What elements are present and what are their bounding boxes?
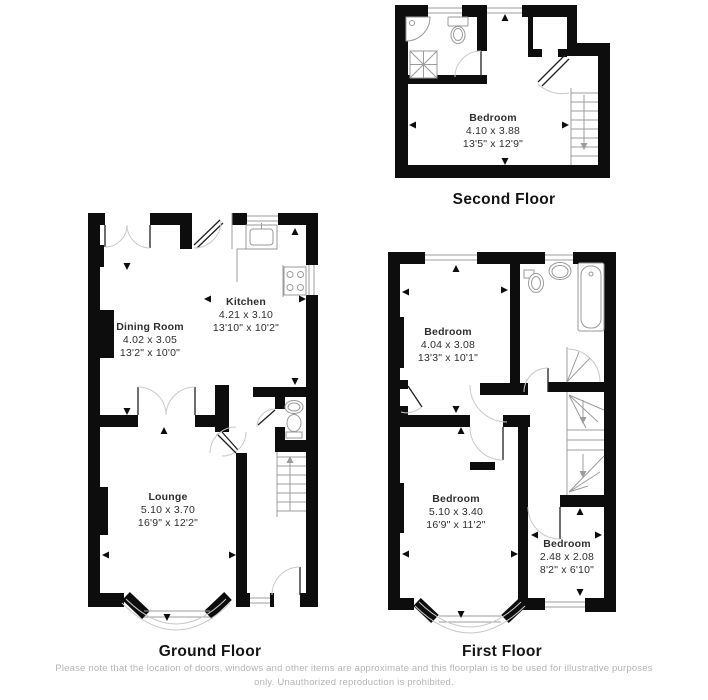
lounge-door-swing	[210, 427, 236, 453]
staircase-symbol	[571, 88, 598, 165]
toilet-symbol	[448, 17, 468, 44]
room-name: Kitchen	[226, 296, 266, 308]
room-name: Bedroom	[432, 493, 480, 505]
toilet-symbol	[524, 270, 544, 293]
room-dim-metric: 5.10 x 3.40	[429, 506, 483, 518]
room-dim-imperial: 13'5" x 12'9"	[463, 138, 523, 150]
winder-stairs-symbol	[567, 347, 600, 382]
skylight-symbol	[410, 51, 437, 78]
bedroom2-door-swing	[470, 427, 503, 460]
entrance-door-swing	[194, 220, 223, 248]
room-dim-metric: 4.02 x 3.05	[123, 334, 177, 346]
shower-symbol	[406, 17, 430, 41]
room-name: Dining Room	[116, 321, 184, 333]
bedroom3-label: Bedroom 2.48 x 2.08 8'2" x 6'10"	[540, 538, 594, 576]
second-floor-walls	[395, 5, 610, 178]
first-floor-plan: Bedroom 4.04 x 3.08 13'3" x 10'1" Bedroo…	[386, 250, 618, 642]
room-dim-metric: 5.10 x 3.70	[141, 504, 195, 516]
disclaimer-text: Please note that the location of doors, …	[54, 662, 654, 691]
room-dim-imperial: 16'9" x 12'2"	[138, 517, 198, 529]
ground-floor-plan: Dining Room 4.02 x 3.05 13'2" x 10'0" Ki…	[86, 211, 334, 635]
french-doors-swing	[105, 225, 150, 248]
floorplan-page: Bedroom 4.10 x 3.88 13'5" x 12'9" Second…	[0, 0, 708, 700]
room-dim-imperial: 13'10" x 10'2"	[213, 322, 279, 334]
ground-floor-caption: Ground Floor	[159, 643, 262, 661]
staircase-symbol	[277, 452, 306, 517]
room-dim-metric: 4.10 x 3.88	[466, 125, 520, 137]
room-name: Bedroom	[543, 538, 591, 550]
lounge-label: Lounge 5.10 x 3.70 16'9" x 12'2"	[138, 491, 198, 529]
bathroom-door-swing	[455, 51, 481, 77]
kitchen-sink-symbol	[246, 223, 277, 249]
room-name: Bedroom	[469, 112, 517, 124]
staircase-symbol	[567, 392, 604, 495]
kitchen-label: Kitchen 4.21 x 3.10 13'10" x 10'2"	[213, 296, 279, 334]
dining-room-label: Dining Room 4.02 x 3.05 13'2" x 10'0"	[116, 321, 184, 359]
wc-sink-symbol	[285, 401, 303, 414]
room-name: Bedroom	[424, 326, 472, 338]
bathtub-symbol	[578, 263, 604, 331]
double-doors-swing	[138, 387, 195, 415]
room-dim-metric: 4.21 x 3.10	[219, 309, 273, 321]
bedroom2-label: Bedroom 5.10 x 3.40 16'9" x 11'2"	[426, 493, 485, 531]
room-dim-metric: 4.04 x 3.08	[421, 339, 475, 351]
stove-symbol	[284, 267, 306, 295]
kitchen-counter	[237, 249, 283, 297]
first-floor-caption: First Floor	[462, 643, 542, 661]
second-floor-caption: Second Floor	[453, 191, 556, 209]
second-bedroom-label: Bedroom 4.10 x 3.88 13'5" x 12'9"	[463, 112, 523, 150]
wc-toilet-symbol	[286, 415, 302, 439]
wc-door-swing	[257, 409, 275, 427]
room-dim-imperial: 16'9" x 11'2"	[426, 519, 485, 531]
front-door-swing	[272, 567, 300, 595]
bedroom1-label: Bedroom 4.04 x 3.08 13'3" x 10'1"	[418, 326, 478, 364]
room-dim-imperial: 8'2" x 6'10"	[540, 564, 594, 576]
kitchen-door-swing	[222, 432, 246, 456]
second-floor-plan: Bedroom 4.10 x 3.88 13'5" x 12'9"	[393, 3, 615, 181]
room-dim-imperial: 13'2" x 10'0"	[120, 347, 180, 359]
closet-door-swing	[538, 55, 569, 94]
room-dim-imperial: 13'3" x 10'1"	[418, 352, 478, 364]
sink-symbol	[549, 263, 571, 280]
room-dim-metric: 2.48 x 2.08	[540, 551, 594, 563]
room-name: Lounge	[148, 491, 187, 503]
